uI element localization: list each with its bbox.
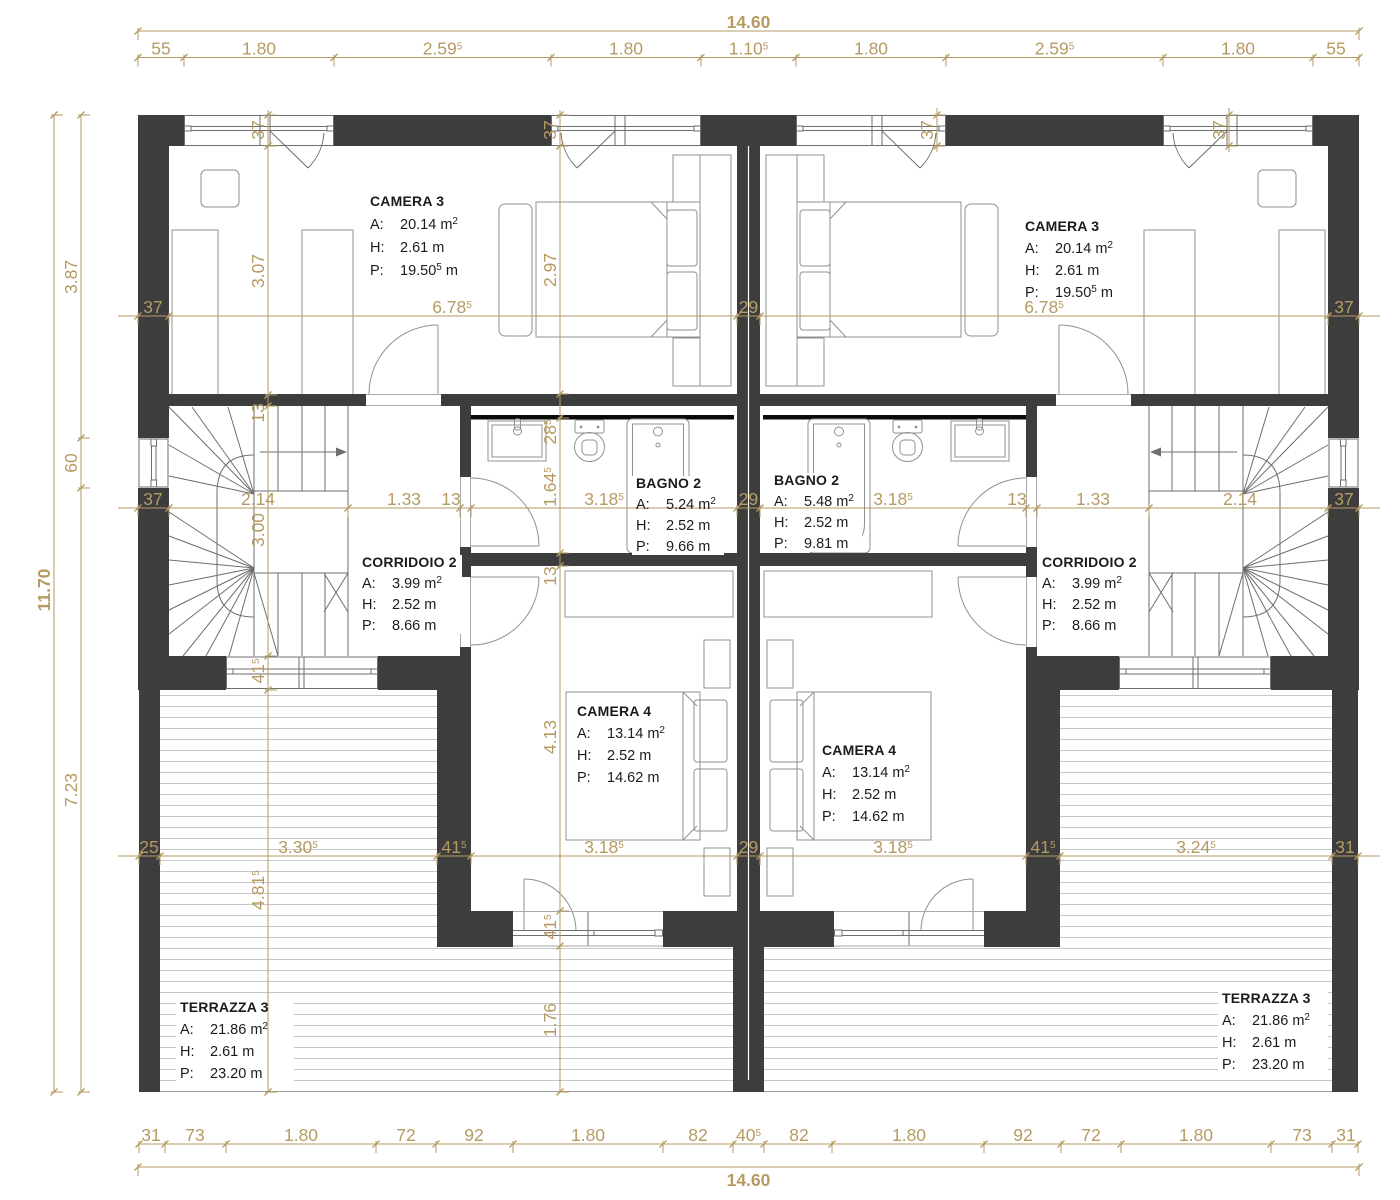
svg-text:2.52 m: 2.52 m [392, 597, 436, 613]
svg-text:13.14 m2: 13.14 m2 [607, 725, 665, 742]
svg-text:5.48 m2: 5.48 m2 [804, 493, 854, 510]
svg-text:A:: A: [362, 576, 376, 592]
svg-text:55: 55 [1326, 39, 1345, 59]
svg-text:37: 37 [1334, 297, 1353, 317]
svg-text:3.185: 3.185 [873, 837, 913, 857]
svg-text:31: 31 [1335, 837, 1354, 857]
svg-text:2.52 m: 2.52 m [852, 787, 896, 803]
svg-text:2.52 m: 2.52 m [1072, 597, 1116, 613]
svg-text:P:: P: [1042, 618, 1056, 634]
svg-text:TERRAZZA 3: TERRAZZA 3 [1222, 990, 1311, 1006]
svg-text:1.80: 1.80 [571, 1125, 605, 1145]
svg-text:2.14: 2.14 [1223, 489, 1257, 509]
svg-text:20.14 m2: 20.14 m2 [1055, 240, 1113, 257]
svg-text:A:: A: [1222, 1013, 1236, 1029]
svg-text:2.52 m: 2.52 m [804, 515, 848, 531]
svg-text:21.86 m2: 21.86 m2 [1252, 1012, 1310, 1029]
svg-text:3.185: 3.185 [584, 489, 624, 509]
svg-text:37: 37 [917, 120, 937, 139]
svg-text:BAGNO 2: BAGNO 2 [774, 472, 839, 488]
svg-text:37: 37 [1209, 120, 1229, 139]
svg-text:73: 73 [1292, 1125, 1311, 1145]
svg-text:14.62 m: 14.62 m [852, 809, 904, 825]
svg-text:20.14 m2: 20.14 m2 [400, 216, 458, 233]
svg-text:2.14: 2.14 [241, 489, 275, 509]
svg-text:82: 82 [789, 1125, 808, 1145]
svg-text:H:: H: [1222, 1035, 1237, 1051]
svg-text:P:: P: [362, 618, 376, 634]
svg-text:1.105: 1.105 [729, 39, 769, 59]
svg-text:13.14 m2: 13.14 m2 [852, 764, 910, 781]
svg-text:29: 29 [739, 837, 758, 857]
svg-text:3.00: 3.00 [248, 513, 268, 547]
svg-text:H:: H: [180, 1044, 195, 1060]
svg-text:H:: H: [822, 787, 837, 803]
svg-text:A:: A: [1042, 576, 1056, 592]
svg-text:13: 13 [540, 566, 560, 585]
svg-text:73: 73 [185, 1125, 204, 1145]
svg-text:A:: A: [636, 497, 650, 513]
svg-text:9.81 m: 9.81 m [804, 536, 848, 552]
svg-text:2.52 m: 2.52 m [607, 748, 651, 764]
svg-text:72: 72 [396, 1125, 415, 1145]
svg-text:CAMERA 4: CAMERA 4 [577, 703, 651, 719]
svg-text:P:: P: [774, 536, 788, 552]
svg-text:H:: H: [362, 597, 377, 613]
svg-text:37: 37 [1334, 489, 1353, 509]
svg-text:37: 37 [540, 120, 560, 139]
svg-text:37: 37 [143, 297, 162, 317]
svg-text:1.80: 1.80 [609, 39, 643, 59]
svg-text:2.61 m: 2.61 m [210, 1044, 254, 1060]
svg-text:82: 82 [688, 1125, 707, 1145]
svg-text:37: 37 [248, 120, 268, 139]
svg-text:37: 37 [143, 489, 162, 509]
svg-text:25: 25 [139, 837, 158, 857]
svg-text:14.60: 14.60 [727, 12, 771, 32]
svg-text:19.505 m: 19.505 m [400, 262, 458, 279]
svg-text:8.66 m: 8.66 m [392, 618, 436, 634]
svg-text:92: 92 [464, 1125, 483, 1145]
svg-text:3.99 m2: 3.99 m2 [1072, 575, 1122, 592]
svg-text:2.595: 2.595 [423, 39, 463, 59]
svg-text:1.80: 1.80 [854, 39, 888, 59]
svg-text:92: 92 [1013, 1125, 1032, 1145]
svg-text:H:: H: [636, 518, 651, 534]
svg-text:A:: A: [180, 1022, 194, 1038]
svg-text:23.20 m: 23.20 m [1252, 1057, 1304, 1073]
svg-text:8.66 m: 8.66 m [1072, 618, 1116, 634]
svg-text:3.185: 3.185 [584, 837, 624, 857]
svg-text:A:: A: [370, 217, 384, 233]
svg-text:4.815: 4.815 [248, 870, 268, 910]
svg-text:CAMERA 3: CAMERA 3 [1025, 218, 1099, 234]
svg-text:3.185: 3.185 [873, 489, 913, 509]
svg-text:60: 60 [61, 453, 81, 473]
svg-text:21.86 m2: 21.86 m2 [210, 1021, 268, 1038]
svg-text:13: 13 [1007, 489, 1026, 509]
svg-text:55: 55 [151, 39, 170, 59]
svg-text:P:: P: [180, 1066, 194, 1082]
svg-text:CAMERA 3: CAMERA 3 [370, 193, 444, 209]
svg-text:H:: H: [370, 240, 385, 256]
svg-text:P:: P: [822, 809, 836, 825]
svg-text:14.62 m: 14.62 m [607, 770, 659, 786]
svg-text:2.61 m: 2.61 m [1055, 263, 1099, 279]
svg-text:2.97: 2.97 [540, 253, 560, 287]
svg-text:3.305: 3.305 [278, 837, 318, 857]
svg-text:7.23: 7.23 [61, 773, 81, 807]
svg-text:1.33: 1.33 [387, 489, 421, 509]
svg-text:13: 13 [248, 403, 268, 422]
svg-text:H:: H: [1042, 597, 1057, 613]
svg-text:P:: P: [636, 539, 650, 555]
svg-text:3.07: 3.07 [248, 254, 268, 288]
svg-text:23.20 m: 23.20 m [210, 1066, 262, 1082]
svg-text:6.785: 6.785 [432, 297, 472, 317]
svg-text:31: 31 [1336, 1125, 1355, 1145]
svg-text:1.645: 1.645 [540, 467, 560, 507]
svg-text:29: 29 [739, 297, 758, 317]
svg-text:5.24 m2: 5.24 m2 [666, 496, 716, 513]
svg-text:1.33: 1.33 [1076, 489, 1110, 509]
svg-text:1.80: 1.80 [242, 39, 276, 59]
svg-text:P:: P: [1025, 285, 1039, 301]
svg-text:TERRAZZA 3: TERRAZZA 3 [180, 999, 269, 1015]
svg-text:29: 29 [739, 489, 758, 509]
svg-text:A:: A: [822, 765, 836, 781]
svg-text:A:: A: [577, 726, 591, 742]
svg-text:2.61 m: 2.61 m [1252, 1035, 1296, 1051]
svg-text:CORRIDOIO 2: CORRIDOIO 2 [1042, 554, 1137, 570]
svg-text:1.80: 1.80 [1179, 1125, 1213, 1145]
svg-text:3.245: 3.245 [1176, 837, 1216, 857]
svg-text:1.76: 1.76 [540, 1003, 560, 1037]
svg-text:2.52 m: 2.52 m [666, 518, 710, 534]
svg-text:4.13: 4.13 [540, 720, 560, 754]
svg-text:2.595: 2.595 [1035, 39, 1075, 59]
svg-text:3.99 m2: 3.99 m2 [392, 575, 442, 592]
svg-text:CORRIDOIO 2: CORRIDOIO 2 [362, 554, 457, 570]
svg-text:3.87: 3.87 [61, 260, 81, 294]
svg-text:P:: P: [1222, 1057, 1236, 1073]
svg-text:H:: H: [577, 748, 592, 764]
svg-text:H:: H: [1025, 263, 1040, 279]
svg-text:9.66 m: 9.66 m [666, 539, 710, 555]
svg-text:72: 72 [1081, 1125, 1100, 1145]
svg-text:P:: P: [577, 770, 591, 786]
svg-text:BAGNO 2: BAGNO 2 [636, 475, 701, 491]
svg-text:1.80: 1.80 [284, 1125, 318, 1145]
svg-text:19.505 m: 19.505 m [1055, 284, 1113, 301]
svg-text:A:: A: [774, 494, 788, 510]
svg-text:H:: H: [774, 515, 789, 531]
svg-text:P:: P: [370, 263, 384, 279]
svg-text:31: 31 [141, 1125, 160, 1145]
svg-text:A:: A: [1025, 241, 1039, 257]
svg-text:2.61 m: 2.61 m [400, 240, 444, 256]
svg-text:CAMERA 4: CAMERA 4 [822, 742, 896, 758]
svg-text:1.80: 1.80 [892, 1125, 926, 1145]
svg-text:13: 13 [441, 489, 460, 509]
svg-text:1.80: 1.80 [1221, 39, 1255, 59]
svg-text:14.60: 14.60 [727, 1170, 771, 1190]
svg-text:11.70: 11.70 [34, 568, 54, 611]
